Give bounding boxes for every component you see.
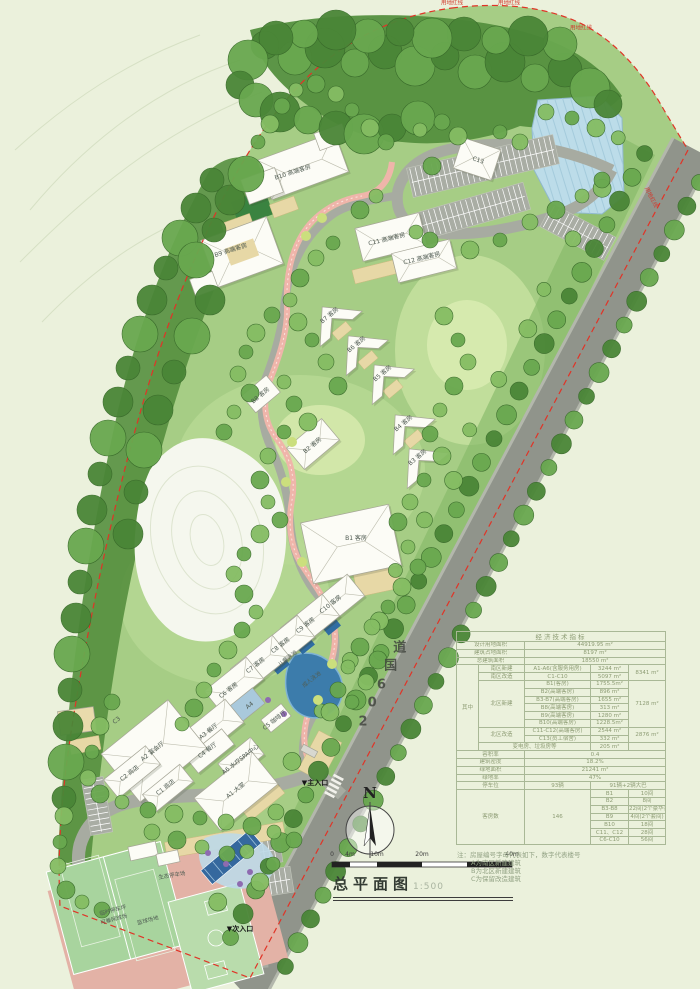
table-cell: 47% <box>525 774 666 782</box>
table-cell: 建筑占地面积 <box>457 649 525 657</box>
table-cell: 205 m² <box>591 743 629 751</box>
table-cell: 21241 m² <box>525 766 666 774</box>
table-cell: A1-A6(含服务用房) <box>525 665 591 673</box>
table-cell: 8间 <box>629 797 666 805</box>
table-cell: 经济技术指标 <box>457 632 666 642</box>
table-cell: B1(客房) <box>525 680 591 688</box>
table-cell: 44919.95 m² <box>525 642 666 650</box>
table-cell: B3-B7(高端客房) <box>525 696 591 704</box>
table-cell: 客房数 <box>457 790 525 845</box>
table-cell: 313 m² <box>591 704 629 712</box>
table-cell: B2(高端客房) <box>525 688 591 696</box>
table-cell: 8341 m² <box>629 665 666 681</box>
table-cell: 18550 m² <box>525 657 666 665</box>
table-cell: 22间(2个豪华套间) <box>629 805 666 813</box>
table-cell: 南区改造 <box>479 673 525 681</box>
north-arrow-label: N <box>363 784 377 802</box>
table-cell: 建筑密度 <box>457 758 525 766</box>
table-cell: 332 m² <box>591 735 629 743</box>
table-cell: 2876 m² <box>629 727 666 743</box>
table-cell: 停车位 <box>457 782 525 790</box>
table-cell: 南区新建 <box>479 665 525 673</box>
table-cell: B10 <box>591 821 629 829</box>
table-cell: B3-B8 <box>591 805 629 813</box>
table-cell: 896 m² <box>591 688 629 696</box>
table-cell: 10间 <box>629 790 666 798</box>
table-cell: 8197 m² <box>525 649 666 657</box>
table-cell: 北区改造 <box>479 727 525 743</box>
table-cell: 91辆+2辆大巴 <box>591 782 666 790</box>
notes-lines: A为南区新建建筑B为北区新建建筑C为保留改造建筑 <box>457 859 581 883</box>
table-cell: 5097 m² <box>591 673 629 681</box>
plan-scale-ratio: 1:500 <box>413 882 444 892</box>
table-cell: 1228.5m² <box>591 719 629 727</box>
table-cell: 0.4 <box>525 751 666 759</box>
table-cell: C6-C10 <box>591 836 629 844</box>
title-underline <box>333 897 513 901</box>
legend-notes: 注：房屋编号字母代表如下，数字代表楼号 A为南区新建建筑B为北区新建建筑C为保留… <box>457 851 581 883</box>
indicator-table: 经济技术指标设计用地面积44919.95 m²建筑占地面积8197 m²总建筑面… <box>456 631 665 845</box>
notes-intro: 注：房屋编号字母代表如下，数字代表楼号 <box>457 851 581 859</box>
table-cell: 3244 m² <box>591 665 629 673</box>
table-cell: 2544 m² <box>591 727 629 735</box>
table-cell: 4间(2个套间) <box>629 813 666 821</box>
table-cell: C11、C12 <box>591 829 629 837</box>
notes-line: C为保留改造建筑 <box>457 875 581 883</box>
table-cell: 1755.5m² <box>591 680 629 688</box>
table-cell: 绿地面积 <box>457 766 525 774</box>
table-cell: 18间 <box>629 821 666 829</box>
table-cell: 绿地率 <box>457 774 525 782</box>
table-cell: B10(高端客房) <box>525 719 591 727</box>
table-cell: 其中 <box>457 665 479 751</box>
table-cell: 设计用地面积 <box>457 642 525 650</box>
table-cell: B1 <box>591 790 629 798</box>
table-cell: 1655 m² <box>591 696 629 704</box>
table-cell: 146 <box>525 790 591 845</box>
table-cell: 93辆 <box>525 782 591 790</box>
site-plan-canvas: B10 高端客房B9 高端客房C13C11 高端客房C12 高端客房B7 客房B… <box>0 0 700 989</box>
table-cell: 18.2% <box>525 758 666 766</box>
table-cell: 56间 <box>629 836 666 844</box>
table-cell: B9 <box>591 813 629 821</box>
notes-line: A为南区新建建筑 <box>457 859 581 867</box>
table-cell: 变电房、垃圾房等 <box>479 743 591 751</box>
table-cell: 7128 m² <box>629 680 666 727</box>
table-cell: B2 <box>591 797 629 805</box>
table-cell: 1280 m² <box>591 712 629 720</box>
table-cell: 容积率 <box>457 751 525 759</box>
table-cell: B8(高端客房) <box>525 704 591 712</box>
table-cell <box>629 743 666 751</box>
table-cell: 总建筑面积 <box>457 657 525 665</box>
table-cell: C11-C12(高端客房) <box>525 727 591 735</box>
table-cell: C13(员工宿舍) <box>525 735 591 743</box>
table-cell: 28间 <box>629 829 666 837</box>
table-cell: 北区新建 <box>479 680 525 727</box>
table-cell: C1-C10 <box>525 673 591 681</box>
economic-indicator-table: 经济技术指标设计用地面积44919.95 m²建筑占地面积8197 m²总建筑面… <box>456 631 666 845</box>
plan-title: 总平面图 <box>333 875 413 893</box>
table-cell: B9(高端客房) <box>525 712 591 720</box>
notes-line: B为北区新建建筑 <box>457 867 581 875</box>
